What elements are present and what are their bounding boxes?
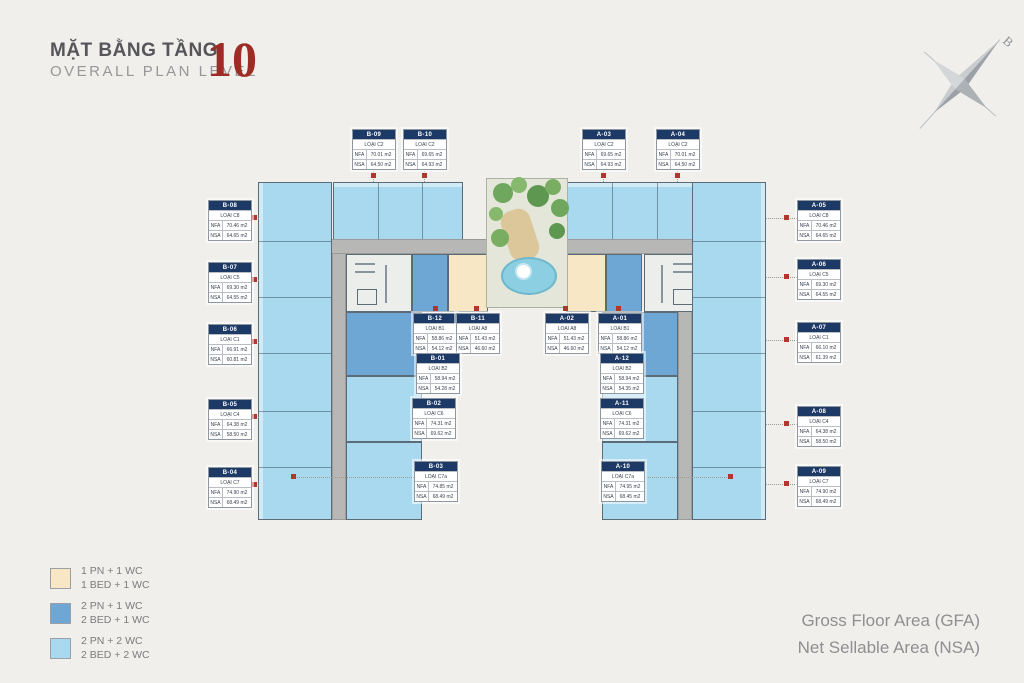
- unit-id: B-03: [415, 462, 457, 471]
- unit-id: B-04: [209, 468, 251, 477]
- unit-B-11-plan: [448, 254, 488, 312]
- nsa-label: NSA: [353, 160, 367, 169]
- unit-id: A-01: [599, 314, 641, 323]
- nsa-value: 68.49 m2: [812, 497, 840, 506]
- page: MẶT BẰNG TẦNG OVERALL PLAN LEVEL 10 B: [0, 0, 1024, 683]
- nsa-value: 58.50 m2: [812, 437, 840, 446]
- nsa-value: 54.35 m2: [615, 384, 643, 393]
- unit-nfa-row: NFA74.31 m2: [413, 418, 455, 428]
- nfa-value: 66.91 m2: [223, 345, 251, 354]
- nsa-value: 46.60 m2: [471, 344, 499, 353]
- unit-label-box-B-12: B-12LOẠI B1NFA58.86 m2NSA54.12 m2: [413, 313, 457, 354]
- unit-nsa-row: NSA68.49 m2: [415, 491, 457, 501]
- nfa-value: 66.10 m2: [812, 343, 840, 352]
- unit-nsa-row: NSA46.60 m2: [546, 343, 588, 353]
- unit-type: LOẠI C1: [209, 334, 251, 344]
- leader-line: [766, 424, 797, 425]
- level-number: 10: [207, 30, 257, 88]
- legend-item-2bed-1wc: 2 PN + 1 WC 2 BED + 1 WC: [50, 600, 150, 627]
- unit-nsa-row: NSA54.12 m2: [599, 343, 641, 353]
- compass-label: B: [1000, 33, 1017, 50]
- nfa-value: 70.01 m2: [367, 150, 395, 159]
- nfa-label: NFA: [798, 280, 812, 289]
- nfa-value: 58.94 m2: [615, 374, 643, 383]
- nfa-value: 74.31 m2: [427, 419, 455, 428]
- unit-type: LOẠI C2: [583, 139, 625, 149]
- unit-label-box-B-10: B-10LOẠI C2NFA69.65 m2NSA64.93 m2: [403, 129, 447, 170]
- unit-type: LOẠI C8: [798, 210, 840, 220]
- legend-label: 2 BED + 1 WC: [81, 614, 150, 628]
- unit-nsa-row: NSA58.50 m2: [798, 436, 840, 446]
- unit-nfa-row: NFA70.01 m2: [353, 149, 395, 159]
- nfa-label: NFA: [209, 345, 223, 354]
- unit-nsa-row: NSA64.93 m2: [583, 159, 625, 169]
- nsa-value: 64.55 m2: [223, 293, 251, 302]
- nsa-value: 64.65 m2: [223, 231, 251, 240]
- unit-id: A-10: [602, 462, 644, 471]
- unit-nsa-row: NSA68.49 m2: [209, 497, 251, 507]
- nfa-label: NFA: [798, 427, 812, 436]
- unit-id: B-08: [209, 201, 251, 210]
- unit-label-box-B-02: B-02LOẠI C6NFA74.31 m2NSA69.62 m2: [412, 398, 456, 439]
- unit-label-box-B-08: B-08LOẠI C8NFA70.46 m2NSA64.65 m2: [208, 200, 252, 241]
- unit-marker-dot: [291, 474, 296, 479]
- unit-type: LOẠI C6: [601, 408, 643, 418]
- lotus-flower: [517, 265, 530, 278]
- unit-B-01-plan: [346, 312, 422, 376]
- unit-nfa-row: NFA58.86 m2: [599, 333, 641, 343]
- unit-nfa-row: NFA64.38 m2: [209, 419, 251, 429]
- nsa-label: NSA: [599, 344, 613, 353]
- unit-type: LOẠI C7a: [602, 471, 644, 481]
- unit-marker-dot: [601, 173, 606, 178]
- unit-id: B-10: [404, 130, 446, 139]
- unit-B-03-plan: [346, 442, 422, 520]
- unit-label-box-B-06: B-06LOẠI C1NFA66.91 m2NSA60.81 m2: [208, 324, 252, 365]
- unit-nsa-row: NSA64.50 m2: [353, 159, 395, 169]
- unit-type: LOẠI B2: [601, 363, 643, 373]
- unit-label-box-A-03: A-03LOẠI C2NFA69.65 m2NSA64.93 m2: [582, 129, 626, 170]
- nsa-label: NSA: [602, 492, 616, 501]
- unit-nsa-row: NSA68.45 m2: [602, 491, 644, 501]
- nfa-label: NFA: [209, 420, 223, 429]
- nfa-value: 58.86 m2: [428, 334, 456, 343]
- nfa-value: 69.65 m2: [418, 150, 446, 159]
- unit-nsa-row: NSA69.62 m2: [413, 428, 455, 438]
- leader-line: [766, 340, 797, 341]
- unit-marker-dot: [784, 215, 789, 220]
- tree: [491, 229, 509, 247]
- nfa-label: NFA: [601, 419, 615, 428]
- unit-marker-dot: [474, 306, 479, 311]
- nsa-label: NSA: [415, 492, 429, 501]
- unit-marker-dot: [252, 339, 257, 344]
- unit-nsa-row: NSA64.50 m2: [657, 159, 699, 169]
- unit-label-box-B-04: B-04LOẠI C7NFA74.90 m2NSA68.49 m2: [208, 467, 252, 508]
- nfa-label: NFA: [657, 150, 671, 159]
- unit-label-box-A-10: A-10LOẠI C7aNFA74.95 m2NSA68.45 m2: [601, 461, 645, 502]
- nsa-value: 64.50 m2: [671, 160, 699, 169]
- unit-type: LOẠI B1: [414, 323, 456, 333]
- nfa-label: NFA: [798, 343, 812, 352]
- nfa-label: NFA: [353, 150, 367, 159]
- nsa-value: 64.50 m2: [367, 160, 395, 169]
- unit-id: B-01: [417, 354, 459, 363]
- unit-marker-dot: [252, 277, 257, 282]
- nsa-value: 64.93 m2: [418, 160, 446, 169]
- nfa-label: NFA: [404, 150, 418, 159]
- unit-label-box-A-05: A-05LOẠI C8NFA70.46 m2NSA64.65 m2: [797, 200, 841, 241]
- nsa-label: NSA: [798, 231, 812, 240]
- unit-marker-dot: [784, 421, 789, 426]
- unit-nfa-row: NFA51.43 m2: [457, 333, 499, 343]
- unit-B-02-plan: [346, 376, 422, 442]
- nfa-label: NFA: [602, 482, 616, 491]
- unit-label-box-A-06: A-06LOẠI C5NFA69.30 m2NSA64.55 m2: [797, 259, 841, 300]
- leader-line: [766, 277, 797, 278]
- unit-nsa-row: NSA64.65 m2: [209, 230, 251, 240]
- unit-nfa-row: NFA58.94 m2: [417, 373, 459, 383]
- unit-marker-dot: [728, 474, 733, 479]
- nfa-value: 70.01 m2: [671, 150, 699, 159]
- unit-nfa-row: NFA66.91 m2: [209, 344, 251, 354]
- unit-id: A-09: [798, 467, 840, 476]
- nfa-label: NFA: [601, 374, 615, 383]
- leader-line: [766, 484, 797, 485]
- unit-label-box-A-08: A-08LOẠI C4NFA64.38 m2NSA58.50 m2: [797, 406, 841, 447]
- nsa-label: NSA: [798, 437, 812, 446]
- unit-type: LOẠI C8: [209, 210, 251, 220]
- unit-nsa-row: NSA64.93 m2: [404, 159, 446, 169]
- unit-marker-dot: [616, 306, 621, 311]
- legend-swatch-2bed-1wc: [50, 603, 71, 624]
- unit-nfa-row: NFA69.65 m2: [404, 149, 446, 159]
- unit-nfa-row: NFA74.31 m2: [601, 418, 643, 428]
- nfa-label: NFA: [546, 334, 560, 343]
- nsa-value: 54.12 m2: [428, 344, 456, 353]
- unit-nfa-row: NFA51.43 m2: [546, 333, 588, 343]
- tree: [489, 207, 503, 221]
- nfa-value: 69.30 m2: [223, 283, 251, 292]
- nsa-value: 69.62 m2: [427, 429, 455, 438]
- nfa-label: NFA: [414, 334, 428, 343]
- unit-type: LOẠI C2: [657, 139, 699, 149]
- nfa-value: 74.95 m2: [616, 482, 644, 491]
- nfa-value: 51.43 m2: [471, 334, 499, 343]
- unit-nfa-row: NFA74.95 m2: [602, 481, 644, 491]
- nsa-label: NSA: [209, 355, 223, 364]
- unit-marker-dot: [784, 481, 789, 486]
- nsa-value: 64.55 m2: [812, 290, 840, 299]
- corridor-left: [332, 253, 346, 520]
- unit-label-box-A-11: A-11LOẠI C6NFA74.31 m2NSA69.62 m2: [600, 398, 644, 439]
- unit-nsa-row: NSA60.81 m2: [209, 354, 251, 364]
- nfa-label: NFA: [599, 334, 613, 343]
- unit-marker-dot: [784, 337, 789, 342]
- unit-nsa-row: NSA61.39 m2: [798, 352, 840, 362]
- nsa-value: 69.62 m2: [615, 429, 643, 438]
- tree: [511, 177, 527, 193]
- nsa-label: NSA: [404, 160, 418, 169]
- page-title-vietnamese: MẶT BẰNG TẦNG: [50, 40, 218, 62]
- unit-nsa-row: NSA58.50 m2: [209, 429, 251, 439]
- nsa-label: NSA: [798, 290, 812, 299]
- unit-nsa-row: NSA64.55 m2: [798, 289, 840, 299]
- unit-marker-dot: [371, 173, 376, 178]
- unit-id: A-04: [657, 130, 699, 139]
- nfa-label: NFA: [209, 221, 223, 230]
- tree: [545, 179, 561, 195]
- left-wing-units: [258, 182, 332, 520]
- topbar-right-units: [566, 182, 700, 240]
- unit-label-box-B-03: B-03LOẠI C7aNFA74.85 m2NSA68.49 m2: [414, 461, 458, 502]
- nsa-value: 68.49 m2: [429, 492, 457, 501]
- unit-id: A-03: [583, 130, 625, 139]
- nsa-value: 68.45 m2: [616, 492, 644, 501]
- nsa-label: NSA: [546, 344, 560, 353]
- nsa-value: 46.60 m2: [560, 344, 588, 353]
- unit-A-02-plan: [566, 254, 606, 312]
- right-wing-units: [692, 182, 766, 520]
- tree: [551, 199, 569, 217]
- unit-marker-dot: [433, 306, 438, 311]
- nsa-label: NSA: [209, 498, 223, 507]
- nfa-value: 64.38 m2: [812, 427, 840, 436]
- unit-id: A-12: [601, 354, 643, 363]
- unit-nsa-row: NSA64.65 m2: [798, 230, 840, 240]
- nfa-value: 58.94 m2: [431, 374, 459, 383]
- nfa-value: 70.46 m2: [812, 221, 840, 230]
- unit-nsa-row: NSA54.35 m2: [601, 383, 643, 393]
- unit-nfa-row: NFA74.90 m2: [798, 486, 840, 496]
- nsa-label: NSA: [798, 497, 812, 506]
- leader-line: [766, 218, 797, 219]
- unit-marker-dot: [563, 306, 568, 311]
- unit-marker-dot: [422, 173, 427, 178]
- nsa-value: 64.65 m2: [812, 231, 840, 240]
- nfa-label: NFA: [798, 487, 812, 496]
- nfa-label: NFA: [415, 482, 429, 491]
- nsa-value: 58.50 m2: [223, 430, 251, 439]
- unit-A-01-plan: [606, 254, 642, 312]
- nsa-value: 64.93 m2: [597, 160, 625, 169]
- nfa-label: NFA: [209, 283, 223, 292]
- nsa-label: NSA: [457, 344, 471, 353]
- nsa-value: 60.81 m2: [223, 355, 251, 364]
- unit-type: LOẠI B2: [417, 363, 459, 373]
- nsa-label: NSA: [417, 384, 431, 393]
- unit-nfa-row: NFA70.46 m2: [209, 220, 251, 230]
- unit-id: B-02: [413, 399, 455, 408]
- unit-label-box-A-01: A-01LOẠI B1NFA58.86 m2NSA54.12 m2: [598, 313, 642, 354]
- tree: [549, 223, 565, 239]
- unit-type: LOẠI C2: [404, 139, 446, 149]
- nsa-label: NSA: [209, 293, 223, 302]
- unit-id: A-02: [546, 314, 588, 323]
- unit-nfa-row: NFA74.90 m2: [209, 487, 251, 497]
- unit-id: A-07: [798, 323, 840, 332]
- nsa-value: 54.12 m2: [613, 344, 641, 353]
- unit-id: B-12: [414, 314, 456, 323]
- nfa-label: NFA: [209, 488, 223, 497]
- unit-nsa-row: NSA69.62 m2: [601, 428, 643, 438]
- unit-nfa-row: NFA69.30 m2: [798, 279, 840, 289]
- courtyard-garden: [486, 178, 568, 308]
- nsa-value: 54.28 m2: [431, 384, 459, 393]
- nfa-label: NFA: [417, 374, 431, 383]
- unit-id: B-06: [209, 325, 251, 334]
- unit-nfa-row: NFA58.86 m2: [414, 333, 456, 343]
- unit-nsa-row: NSA54.28 m2: [417, 383, 459, 393]
- nfa-value: 51.43 m2: [560, 334, 588, 343]
- legend-item-1bed: 1 PN + 1 WC 1 BED + 1 WC: [50, 565, 150, 592]
- topbar-left-units: [333, 182, 463, 240]
- unit-type: LOẠI B1: [599, 323, 641, 333]
- leader-line: [641, 477, 731, 478]
- unit-nfa-row: NFA58.94 m2: [601, 373, 643, 383]
- nsa-label: NSA: [209, 231, 223, 240]
- nfa-value: 74.31 m2: [615, 419, 643, 428]
- unit-type: LOẠI C2: [353, 139, 395, 149]
- unit-label-box-A-07: A-07LOẠI C1NFA66.10 m2NSA61.39 m2: [797, 322, 841, 363]
- nfa-value: 74.85 m2: [429, 482, 457, 491]
- unit-label-box-B-01: B-01LOẠI B2NFA58.94 m2NSA54.28 m2: [416, 353, 460, 394]
- leader-line: [293, 477, 414, 478]
- unit-nfa-row: NFA69.65 m2: [583, 149, 625, 159]
- nsa-label: NSA: [583, 160, 597, 169]
- legend-label: 1 PN + 1 WC: [81, 565, 150, 579]
- nfa-value: 69.65 m2: [597, 150, 625, 159]
- unit-id: B-11: [457, 314, 499, 323]
- unit-label-box-A-12: A-12LOẠI B2NFA58.94 m2NSA54.35 m2: [600, 353, 644, 394]
- unit-nsa-row: NSA64.55 m2: [209, 292, 251, 302]
- unit-type: LOẠI C7: [209, 477, 251, 487]
- unit-type: LOẠI A8: [457, 323, 499, 333]
- unit-id: A-11: [601, 399, 643, 408]
- unit-marker-dot: [252, 215, 257, 220]
- unit-id: A-05: [798, 201, 840, 210]
- unit-nsa-row: NSA68.49 m2: [798, 496, 840, 506]
- unit-nsa-row: NSA46.60 m2: [457, 343, 499, 353]
- nsa-label: NSA: [209, 430, 223, 439]
- unit-label-box-A-09: A-09LOẠI C7NFA74.90 m2NSA68.49 m2: [797, 466, 841, 507]
- area-abbreviations-note: Gross Floor Area (GFA) Net Sellable Area…: [798, 608, 980, 661]
- unit-type: LOẠI C5: [209, 272, 251, 282]
- nfa-value: 70.46 m2: [223, 221, 251, 230]
- unit-B-12-plan: [412, 254, 448, 312]
- pool: [501, 257, 557, 295]
- unit-nfa-row: NFA70.01 m2: [657, 149, 699, 159]
- legend-label: 2 BED + 2 WC: [81, 649, 150, 663]
- compass-north-icon: B: [898, 22, 1022, 146]
- nfa-value: 58.86 m2: [613, 334, 641, 343]
- unit-marker-dot: [675, 173, 680, 178]
- unit-id: A-06: [798, 260, 840, 269]
- legend-label: 2 PN + 2 WC: [81, 635, 150, 649]
- nsa-label: NSA: [601, 429, 615, 438]
- unit-type: LOẠI C5: [798, 269, 840, 279]
- nsa-value: 61.39 m2: [812, 353, 840, 362]
- unit-type: LOẠI C6: [413, 408, 455, 418]
- nsa-label: NSA: [414, 344, 428, 353]
- unit-marker-dot: [784, 274, 789, 279]
- nfa-label: NFA: [457, 334, 471, 343]
- nfa-value: 64.38 m2: [223, 420, 251, 429]
- nsa-label: NSA: [413, 429, 427, 438]
- legend-label: 1 BED + 1 WC: [81, 579, 150, 593]
- unit-nfa-row: NFA74.85 m2: [415, 481, 457, 491]
- legend-item-2bed-2wc: 2 PN + 2 WC 2 BED + 2 WC: [50, 635, 150, 662]
- unit-type: LOẠI C7a: [415, 471, 457, 481]
- unit-label-box-B-05: B-05LOẠI C4NFA64.38 m2NSA58.50 m2: [208, 399, 252, 440]
- unit-label-box-B-09: B-09LOẠI C2NFA70.01 m2NSA64.50 m2: [352, 129, 396, 170]
- unit-label-box-B-11: B-11LOẠI A8NFA51.43 m2NSA46.60 m2: [456, 313, 500, 354]
- legend-swatch-1bed: [50, 568, 71, 589]
- tree: [493, 183, 513, 203]
- nfa-label: NFA: [413, 419, 427, 428]
- unit-nfa-row: NFA66.10 m2: [798, 342, 840, 352]
- unit-nsa-row: NSA54.12 m2: [414, 343, 456, 353]
- unit-type: LOẠI C7: [798, 476, 840, 486]
- unit-type: LOẠI C4: [798, 416, 840, 426]
- unit-type: LOẠI A8: [546, 323, 588, 333]
- unit-marker-dot: [252, 482, 257, 487]
- gfa-note: Gross Floor Area (GFA): [798, 608, 980, 634]
- nsa-label: NSA: [657, 160, 671, 169]
- nfa-label: NFA: [583, 150, 597, 159]
- unit-type: LOẠI C1: [798, 332, 840, 342]
- nfa-label: NFA: [798, 221, 812, 230]
- nsa-note: Net Sellable Area (NSA): [798, 635, 980, 661]
- unit-id: A-08: [798, 407, 840, 416]
- unit-id: B-07: [209, 263, 251, 272]
- stair-core-left: [346, 254, 412, 312]
- unit-nfa-row: NFA69.30 m2: [209, 282, 251, 292]
- unit-id: B-09: [353, 130, 395, 139]
- unit-nfa-row: NFA70.46 m2: [798, 220, 840, 230]
- legend-label: 2 PN + 1 WC: [81, 600, 150, 614]
- nfa-value: 74.90 m2: [223, 488, 251, 497]
- unit-type: LOẠI C4: [209, 409, 251, 419]
- legend-swatch-2bed-2wc: [50, 638, 71, 659]
- nsa-label: NSA: [798, 353, 812, 362]
- unit-marker-dot: [252, 414, 257, 419]
- unit-label-box-A-04: A-04LOẠI C2NFA70.01 m2NSA64.50 m2: [656, 129, 700, 170]
- unit-label-box-A-02: A-02LOẠI A8NFA51.43 m2NSA46.60 m2: [545, 313, 589, 354]
- unit-nfa-row: NFA64.38 m2: [798, 426, 840, 436]
- nsa-value: 68.49 m2: [223, 498, 251, 507]
- nfa-value: 74.90 m2: [812, 487, 840, 496]
- unit-id: B-05: [209, 400, 251, 409]
- unit-label-box-B-07: B-07LOẠI C5NFA69.30 m2NSA64.55 m2: [208, 262, 252, 303]
- nfa-value: 69.30 m2: [812, 280, 840, 289]
- nsa-label: NSA: [601, 384, 615, 393]
